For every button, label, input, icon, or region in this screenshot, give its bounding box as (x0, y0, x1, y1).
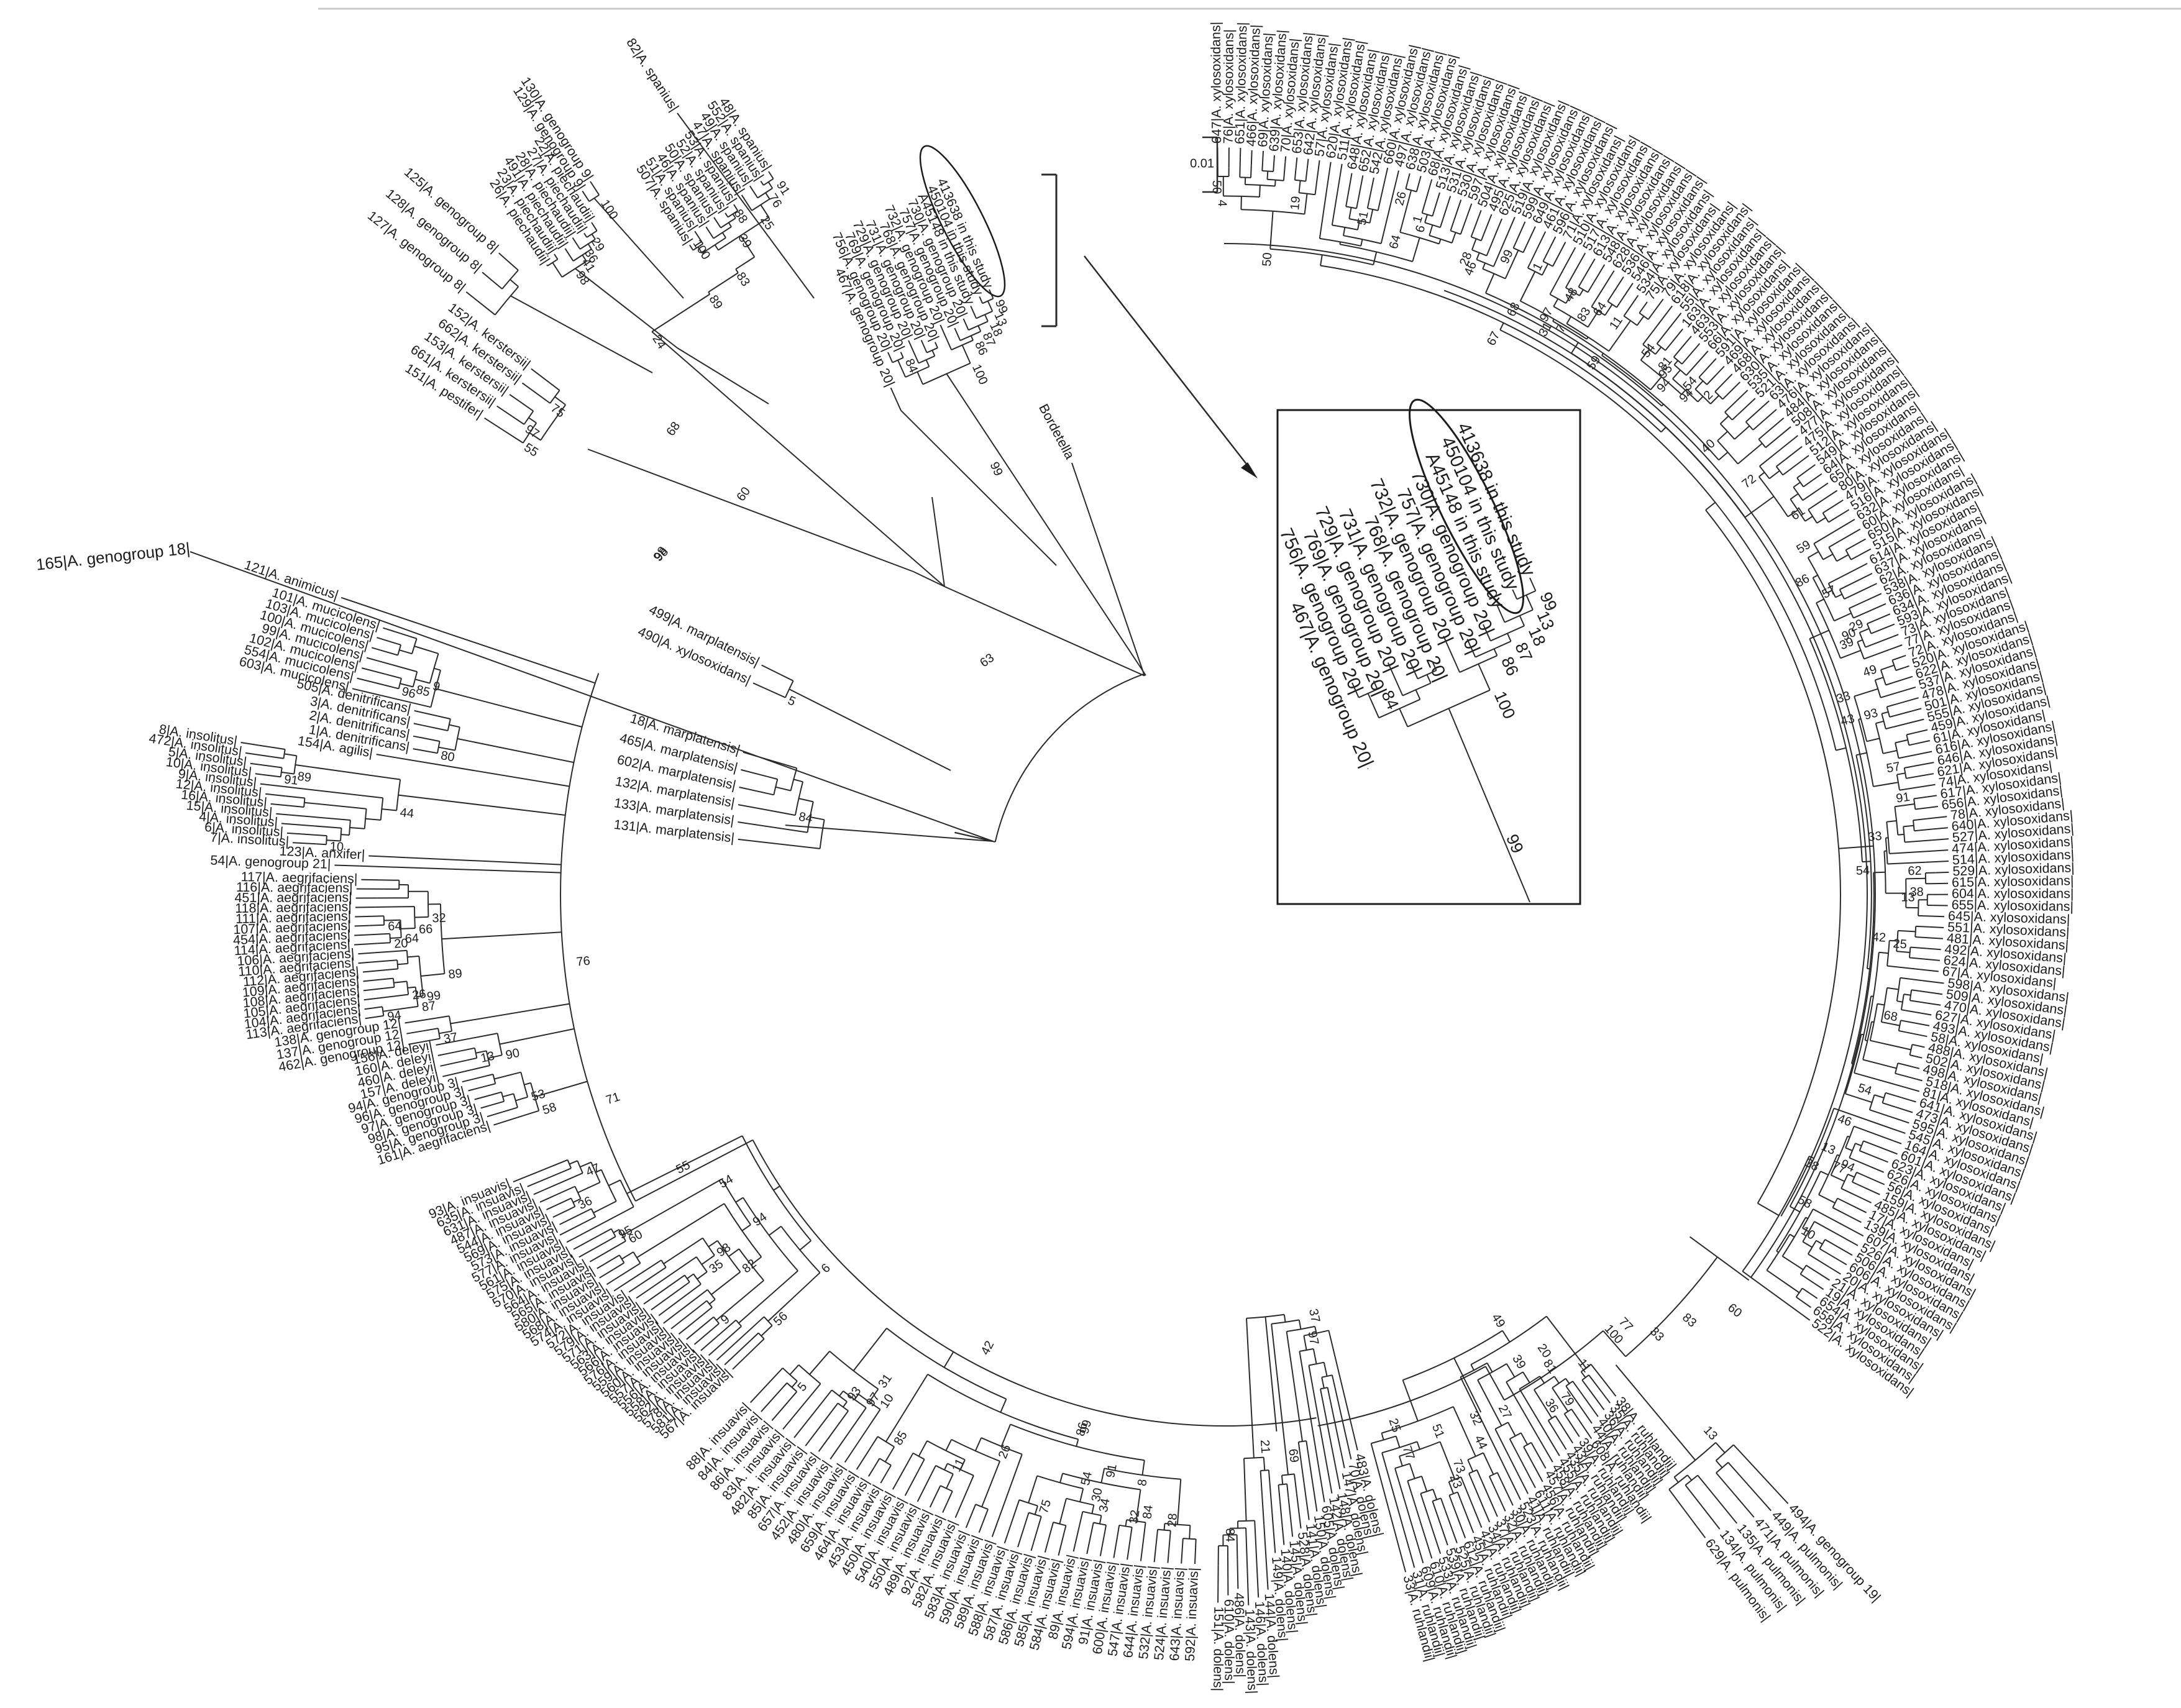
svg-text:84: 84 (1140, 1504, 1156, 1520)
svg-text:30: 30 (1089, 1487, 1105, 1503)
svg-text:91: 91 (1895, 790, 1911, 806)
svg-text:69: 69 (1286, 1448, 1301, 1464)
svg-text:57: 57 (1885, 760, 1901, 776)
svg-text:91: 91 (1104, 1463, 1120, 1479)
svg-text:117|A. aegrifaciens|: 117|A. aegrifaciens| (241, 869, 358, 886)
svg-text:66: 66 (419, 922, 433, 936)
svg-text:151|A. dolens|: 151|A. dolens| (1210, 1606, 1226, 1691)
svg-text:32: 32 (432, 911, 446, 926)
svg-text:50: 50 (1260, 252, 1274, 267)
svg-text:0.01: 0.01 (1190, 157, 1214, 170)
svg-text:25: 25 (1893, 937, 1908, 952)
svg-text:19: 19 (1288, 196, 1303, 211)
svg-text:62: 62 (1908, 864, 1922, 879)
svg-text:64: 64 (405, 931, 419, 946)
svg-text:10: 10 (329, 840, 344, 854)
svg-text:37: 37 (1306, 1307, 1322, 1323)
svg-text:89: 89 (447, 967, 462, 982)
svg-text:44: 44 (400, 806, 414, 821)
svg-text:76: 76 (575, 954, 590, 969)
svg-text:21: 21 (1258, 1439, 1273, 1454)
svg-text:4: 4 (1215, 199, 1229, 206)
svg-text:68: 68 (1883, 1008, 1899, 1025)
svg-text:80: 80 (440, 749, 456, 765)
svg-text:89: 89 (296, 770, 312, 785)
svg-text:54: 54 (1856, 864, 1870, 878)
svg-text:99: 99 (426, 989, 442, 1004)
svg-text:51: 51 (1355, 210, 1371, 226)
svg-text:64: 64 (388, 920, 402, 934)
